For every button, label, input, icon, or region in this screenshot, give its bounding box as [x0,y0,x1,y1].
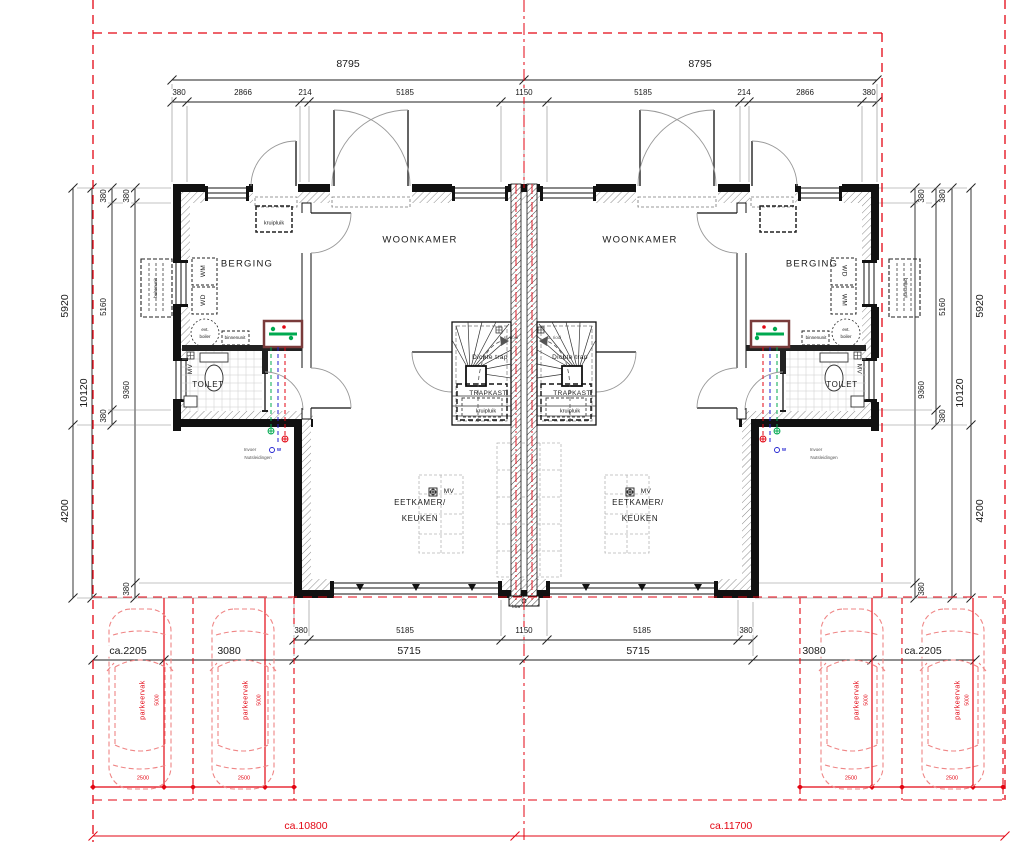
dim-top-seg: 2866 [233,89,253,97]
label-binnenunit-right: binnenunit [806,336,827,341]
label-invoer-right-1: Invoer [810,448,823,453]
dim-top-seg: 214 [297,89,312,97]
dim-top-seg: 214 [736,89,751,97]
label-parkeervak-3: parkeervak [854,680,861,720]
label-parking-width-2: 2500 [238,776,250,782]
room-toilet-right: TOILET [826,381,857,389]
label-wd-right: WD [840,265,847,277]
dim-top-seg: 380 [171,89,186,97]
label-parkeervak-4: parkeervak [955,680,962,720]
dim-left-seg: 380 [100,408,108,423]
floorplan-canvas: 8795 8795 380 2866 214 5185 1150 5185 21… [0,0,1028,842]
dim-left-seg: 380 [100,188,108,203]
dim-top-seg: 5185 [633,89,653,97]
dim-right-seg: 5160 [939,297,947,317]
label-parkeervak-2: parkeervak [243,680,250,720]
dim-left-seg: 380 [123,188,131,203]
dim-parking-2205-right: ca.2205 [902,646,943,657]
label-invoer-right-2: Nutsleidingen [810,456,837,461]
label-trapkast-left: TRAPKAST [469,391,507,398]
meter-cupboards [264,321,789,347]
wall-openings [171,184,879,600]
room-eetkamer-right-2: KEUKEN [622,515,659,523]
room-woonkamer-left: WOONKAMER [382,235,457,245]
label-parking-depth-1: 5000 [156,694,161,705]
dim-bottom-seg: 5185 [395,627,415,635]
label-trapkast-right: TRAPKAST [553,391,591,398]
label-boiler-left-1: evt. [201,328,208,333]
dim-5715-left: 5715 [395,646,422,657]
dim-top-seg: 5185 [395,89,415,97]
room-berging-right: BERGING [786,259,838,269]
dim-right-seg: 380 [918,581,926,596]
dim-right-4200: 4200 [975,497,986,524]
dim-right-seg: 380 [939,408,947,423]
dim-right-seg: 380 [939,188,947,203]
dim-plot-width-left: ca.10800 [282,821,329,832]
dim-left-seg: 5160 [100,297,108,317]
dim-parking-3080-right: 3080 [800,646,827,657]
dim-5715-right: 5715 [624,646,651,657]
utility-service-lines [268,347,780,453]
label-mv-toilet-right: MV [855,364,862,375]
label-mv-toilet-left: MV [188,364,195,375]
dim-bottom-seg: 380 [738,627,753,635]
room-berging-left: BERGING [221,259,273,269]
label-wd-left: WD [201,294,208,306]
room-eetkamer-right-1: EETKAMER/ [612,499,664,507]
label-parking-width-1: 2500 [137,776,149,782]
room-eetkamer-left-1: EETKAMER/ [394,499,446,507]
label-invoer-left-2: Nutsleidingen [244,456,271,461]
label-hwa: hwa [512,605,520,610]
label-boiler-right-2: boiler [840,335,851,340]
interior-walls [182,203,866,419]
label-water-right: W [782,448,786,453]
room-toilet-left: TOILET [192,381,223,389]
label-mv-eetkamer-left: MV [444,489,455,496]
parking-area [89,598,1010,841]
label-kruipluik-stair-left: kruipluik [476,409,496,415]
label-parking-depth-4: 5000 [966,694,971,705]
dim-parking-3080-left: 3080 [215,646,242,657]
label-boiler-right-1: evt. [842,328,849,333]
dim-top-seg: 2866 [795,89,815,97]
floorplan-drawing [0,0,1028,842]
party-wall [509,184,539,606]
dim-left-5920: 5920 [60,292,71,319]
dim-left-4200: 4200 [60,497,71,524]
label-buitenunit-left: buitenunit [154,278,159,298]
label-parking-width-4: 2500 [946,776,958,782]
label-water-left: W [277,448,281,453]
dim-plot-width-right: ca.11700 [708,821,754,832]
dim-right-5920: 5920 [975,292,986,319]
dim-bottom-seg: 380 [293,627,308,635]
label-parking-width-3: 2500 [845,776,857,782]
label-wm-right: WM [840,294,847,306]
label-st-riool-right: st. riool [547,336,562,341]
dim-top-seg: 1150 [514,89,533,97]
label-binnenunit-left: binnenunit [225,336,246,341]
dim-right-seg: 9360 [918,380,926,400]
label-dichte-trap-right: Dichte trap [552,355,588,362]
label-kruipluik-stair-right: kruipluik [560,409,580,415]
label-mv-eetkamer-right: MV [641,489,652,496]
label-invoer-left-1: Invoer [244,448,257,453]
label-wm-left: WM [201,265,208,277]
label-parking-depth-2: 5000 [258,694,263,705]
label-kruipluik-berging: kruipluik [264,221,284,227]
dim-left-seg: 9360 [123,380,131,400]
dim-right-seg: 380 [918,188,926,203]
dim-parking-2205-left: ca.2205 [107,646,148,657]
dim-top-overall-left: 8795 [334,59,361,70]
dim-right-10120: 10120 [955,376,966,409]
label-boiler-left-2: boiler [199,335,210,340]
label-parking-depth-3: 5000 [865,694,870,705]
dim-top-seg: 380 [861,89,876,97]
dim-left-10120: 10120 [79,376,90,409]
exterior-walls [173,184,879,598]
label-dichte-trap-left: Dichte trap [472,355,508,362]
label-st-riool-left: st. riool [504,336,519,341]
label-buitenunit-right: buitenunit [903,278,908,298]
dim-top-overall-right: 8795 [686,59,713,70]
dim-bottom-seg: 1150 [514,627,533,635]
label-parkeervak-1: parkeervak [140,680,147,720]
dim-bottom-seg: 5185 [632,627,652,635]
room-woonkamer-right: WOONKAMER [602,235,677,245]
dim-left-seg: 380 [123,581,131,596]
room-eetkamer-left-2: KEUKEN [402,515,439,523]
